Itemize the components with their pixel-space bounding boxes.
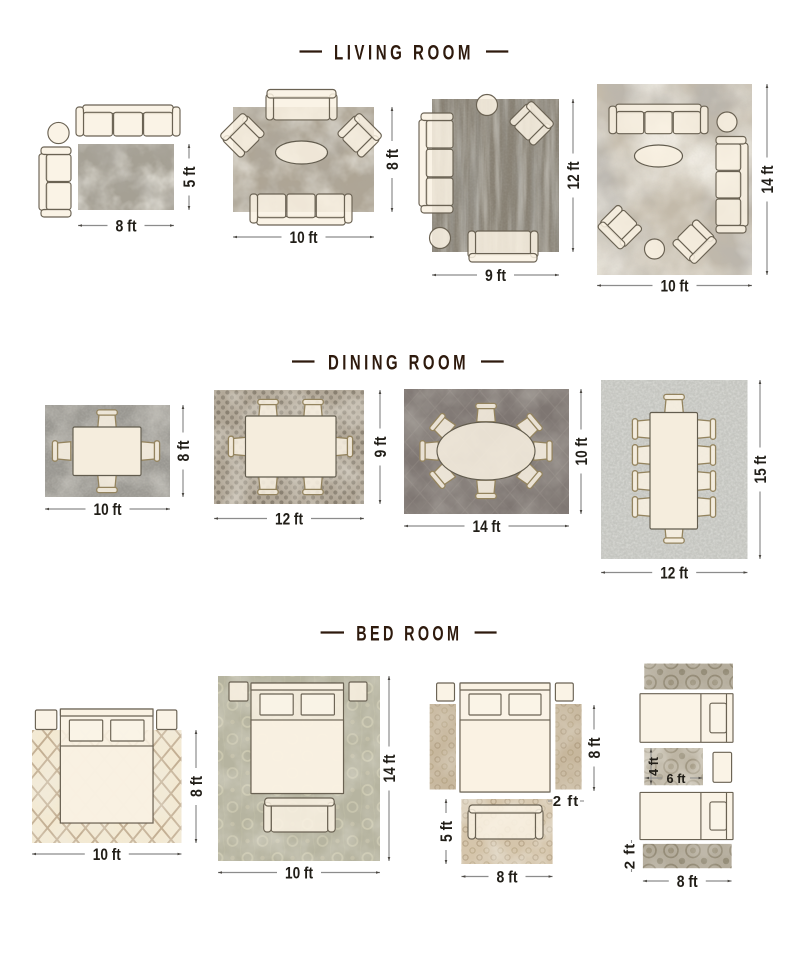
svg-text:5 ft: 5 ft — [438, 821, 456, 842]
svg-text:9 ft: 9 ft — [485, 267, 506, 285]
svg-text:10 ft: 10 ft — [285, 865, 313, 883]
svg-text:8 ft: 8 ft — [175, 440, 193, 461]
svg-text:9 ft: 9 ft — [372, 436, 390, 457]
svg-text:DINING ROOM: DINING ROOM — [328, 351, 469, 375]
svg-text:10 ft: 10 ft — [94, 501, 122, 519]
svg-text:12 ft: 12 ft — [275, 511, 303, 529]
svg-text:15 ft: 15 ft — [752, 455, 770, 483]
svg-text:8 ft: 8 ft — [384, 149, 402, 170]
svg-text:8 ft: 8 ft — [677, 873, 698, 891]
svg-text:5 ft: 5 ft — [181, 166, 199, 187]
svg-text:2 ft: 2 ft — [622, 843, 639, 870]
svg-text:14 ft: 14 ft — [759, 165, 777, 193]
svg-text:12 ft: 12 ft — [565, 161, 583, 189]
svg-text:14 ft: 14 ft — [381, 754, 399, 782]
svg-text:2 ft: 2 ft — [553, 793, 580, 810]
svg-text:BED ROOM: BED ROOM — [356, 622, 462, 646]
svg-text:4 ft: 4 ft — [646, 756, 661, 776]
svg-text:12 ft: 12 ft — [660, 565, 688, 583]
svg-text:8 ft: 8 ft — [116, 218, 137, 236]
svg-text:10 ft: 10 ft — [290, 229, 318, 247]
svg-text:10 ft: 10 ft — [93, 846, 121, 864]
svg-text:14 ft: 14 ft — [473, 518, 501, 536]
svg-text:LIVING ROOM: LIVING ROOM — [334, 41, 474, 65]
svg-text:8 ft: 8 ft — [188, 776, 206, 797]
svg-text:8 ft: 8 ft — [497, 869, 518, 887]
svg-text:8 ft: 8 ft — [586, 737, 604, 758]
svg-text:10 ft: 10 ft — [573, 437, 591, 465]
svg-text:6 ft: 6 ft — [667, 771, 687, 786]
svg-text:10 ft: 10 ft — [661, 278, 689, 296]
